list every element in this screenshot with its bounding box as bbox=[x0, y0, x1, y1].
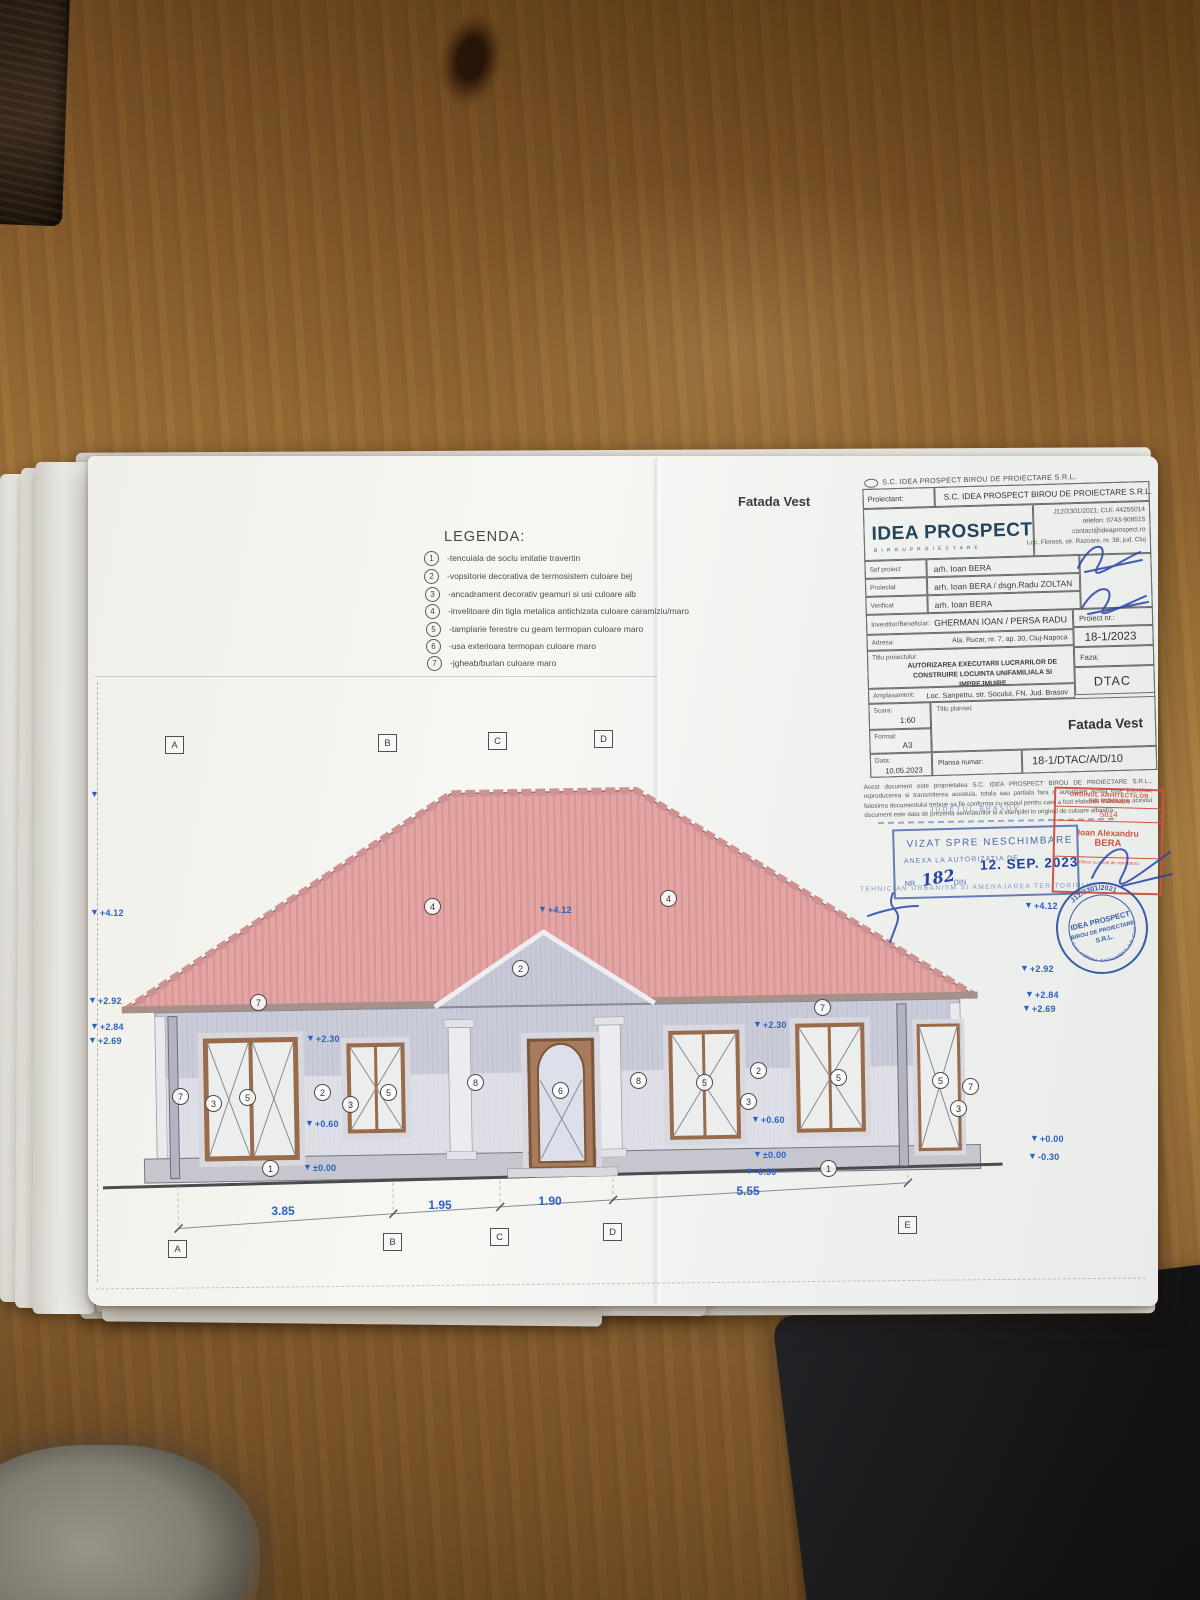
elev-left-ridge: ▼+4.12 bbox=[90, 908, 124, 918]
elev-ridge-center: ▼+4.12 bbox=[538, 905, 572, 915]
axis-bottom-A: A bbox=[168, 1240, 187, 1258]
axis-top-D: D bbox=[594, 730, 613, 748]
elev-sill-right: ▼+0.60 bbox=[751, 1115, 785, 1125]
callout-8: 8 bbox=[467, 1074, 484, 1091]
axis-bottom-B: B bbox=[383, 1233, 402, 1251]
callout-2: 2 bbox=[750, 1062, 767, 1079]
elev-lintel-right: ▼+2.30 bbox=[753, 1020, 787, 1030]
callout-5: 5 bbox=[696, 1074, 713, 1091]
elev-right-ground: ▼-0.30 bbox=[1028, 1152, 1059, 1162]
callout-2: 2 bbox=[314, 1084, 331, 1101]
elev-zero-right: ▼±0.00 bbox=[753, 1150, 786, 1160]
elev-ground-center: ▼-0.30 bbox=[745, 1167, 776, 1177]
callout-1: 1 bbox=[820, 1160, 837, 1177]
callout-3: 3 bbox=[205, 1095, 222, 1112]
callout-5: 5 bbox=[932, 1072, 949, 1089]
callout-5: 5 bbox=[830, 1069, 847, 1086]
callout-8: 8 bbox=[630, 1072, 647, 1089]
callout-3: 3 bbox=[950, 1100, 967, 1117]
callout-6: 6 bbox=[552, 1082, 569, 1099]
elev-left-eave-low: ▼+2.69 bbox=[88, 1036, 122, 1046]
elevation-arrow-icon: ▼ bbox=[88, 996, 97, 1004]
callout-7: 7 bbox=[250, 994, 267, 1011]
elevation-arrow-icon: ▼ bbox=[753, 1020, 762, 1028]
elevation-arrow-icon: ▼ bbox=[90, 790, 99, 798]
elevation-arrow-icon: ▼ bbox=[306, 1034, 315, 1042]
elevation-arrow-icon: ▼ bbox=[745, 1167, 754, 1175]
axis-bottom-E: E bbox=[898, 1216, 917, 1234]
elevation-arrow-icon: ▼ bbox=[1022, 1004, 1031, 1012]
axis-top-A: A bbox=[165, 736, 184, 754]
elev-left-eave-mid: ▼+2.84 bbox=[90, 1022, 124, 1032]
callout-3: 3 bbox=[740, 1093, 757, 1110]
axis-top-C: C bbox=[488, 732, 507, 750]
photo-scene: Fatada Vest LEGENDA: 1 -tencuiala de soc… bbox=[0, 0, 1200, 1600]
signatures-overlay bbox=[0, 0, 1200, 1600]
elevation-arrow-icon: ▼ bbox=[1024, 901, 1033, 909]
elev-right-eave-high: ▼+2.92 bbox=[1020, 964, 1054, 974]
callout-7: 7 bbox=[172, 1088, 189, 1105]
elev-lintel-left: ▼+2.30 bbox=[306, 1034, 340, 1044]
callout-4: 4 bbox=[424, 898, 441, 915]
axis-bottom-C: C bbox=[490, 1228, 509, 1246]
elevation-arrow-icon: ▼ bbox=[538, 905, 547, 913]
elevation-arrow-icon: ▼ bbox=[1028, 1152, 1037, 1160]
elevation-arrow-icon: ▼ bbox=[1020, 964, 1029, 972]
elevation-arrow-icon: ▼ bbox=[753, 1150, 762, 1158]
callout-5: 5 bbox=[239, 1089, 256, 1106]
axis-bottom-D: D bbox=[603, 1223, 622, 1241]
elev-right-zero: ▼+0.00 bbox=[1030, 1134, 1064, 1144]
elevation-arrow-icon: ▼ bbox=[90, 908, 99, 916]
elevation-arrow-icon: ▼ bbox=[88, 1036, 97, 1044]
callout-7: 7 bbox=[962, 1078, 979, 1095]
elev-mark-unlabeled: ▼ bbox=[90, 790, 99, 798]
callout-7: 7 bbox=[814, 999, 831, 1016]
dim-B-C: 1.95 bbox=[428, 1198, 451, 1212]
callout-2: 2 bbox=[512, 960, 529, 977]
elevation-arrow-icon: ▼ bbox=[751, 1115, 760, 1123]
callout-5: 5 bbox=[380, 1084, 397, 1101]
dim-D-E: 5.55 bbox=[736, 1184, 759, 1198]
elev-right-eave-mid: ▼+2.84 bbox=[1025, 990, 1059, 1000]
elevation-arrow-icon: ▼ bbox=[305, 1119, 314, 1127]
elevation-arrow-icon: ▼ bbox=[303, 1163, 312, 1171]
elev-sill-left: ▼+0.60 bbox=[305, 1119, 339, 1129]
dim-A-B: 3.85 bbox=[271, 1204, 294, 1218]
elevation-arrow-icon: ▼ bbox=[1025, 990, 1034, 998]
callout-1: 1 bbox=[262, 1160, 279, 1177]
axis-top-B: B bbox=[378, 734, 397, 752]
callout-4: 4 bbox=[660, 890, 677, 907]
elev-right-ridge: ▼+4.12 bbox=[1024, 901, 1058, 911]
elevation-arrow-icon: ▼ bbox=[1030, 1134, 1039, 1142]
elev-right-eave-low: ▼+2.69 bbox=[1022, 1004, 1056, 1014]
elev-zero-left: ▼±0.00 bbox=[303, 1163, 336, 1173]
elevation-arrow-icon: ▼ bbox=[90, 1022, 99, 1030]
elev-left-eave-high: ▼+2.92 bbox=[88, 996, 122, 1006]
callout-3: 3 bbox=[342, 1096, 359, 1113]
dim-C-D: 1.90 bbox=[538, 1194, 561, 1208]
